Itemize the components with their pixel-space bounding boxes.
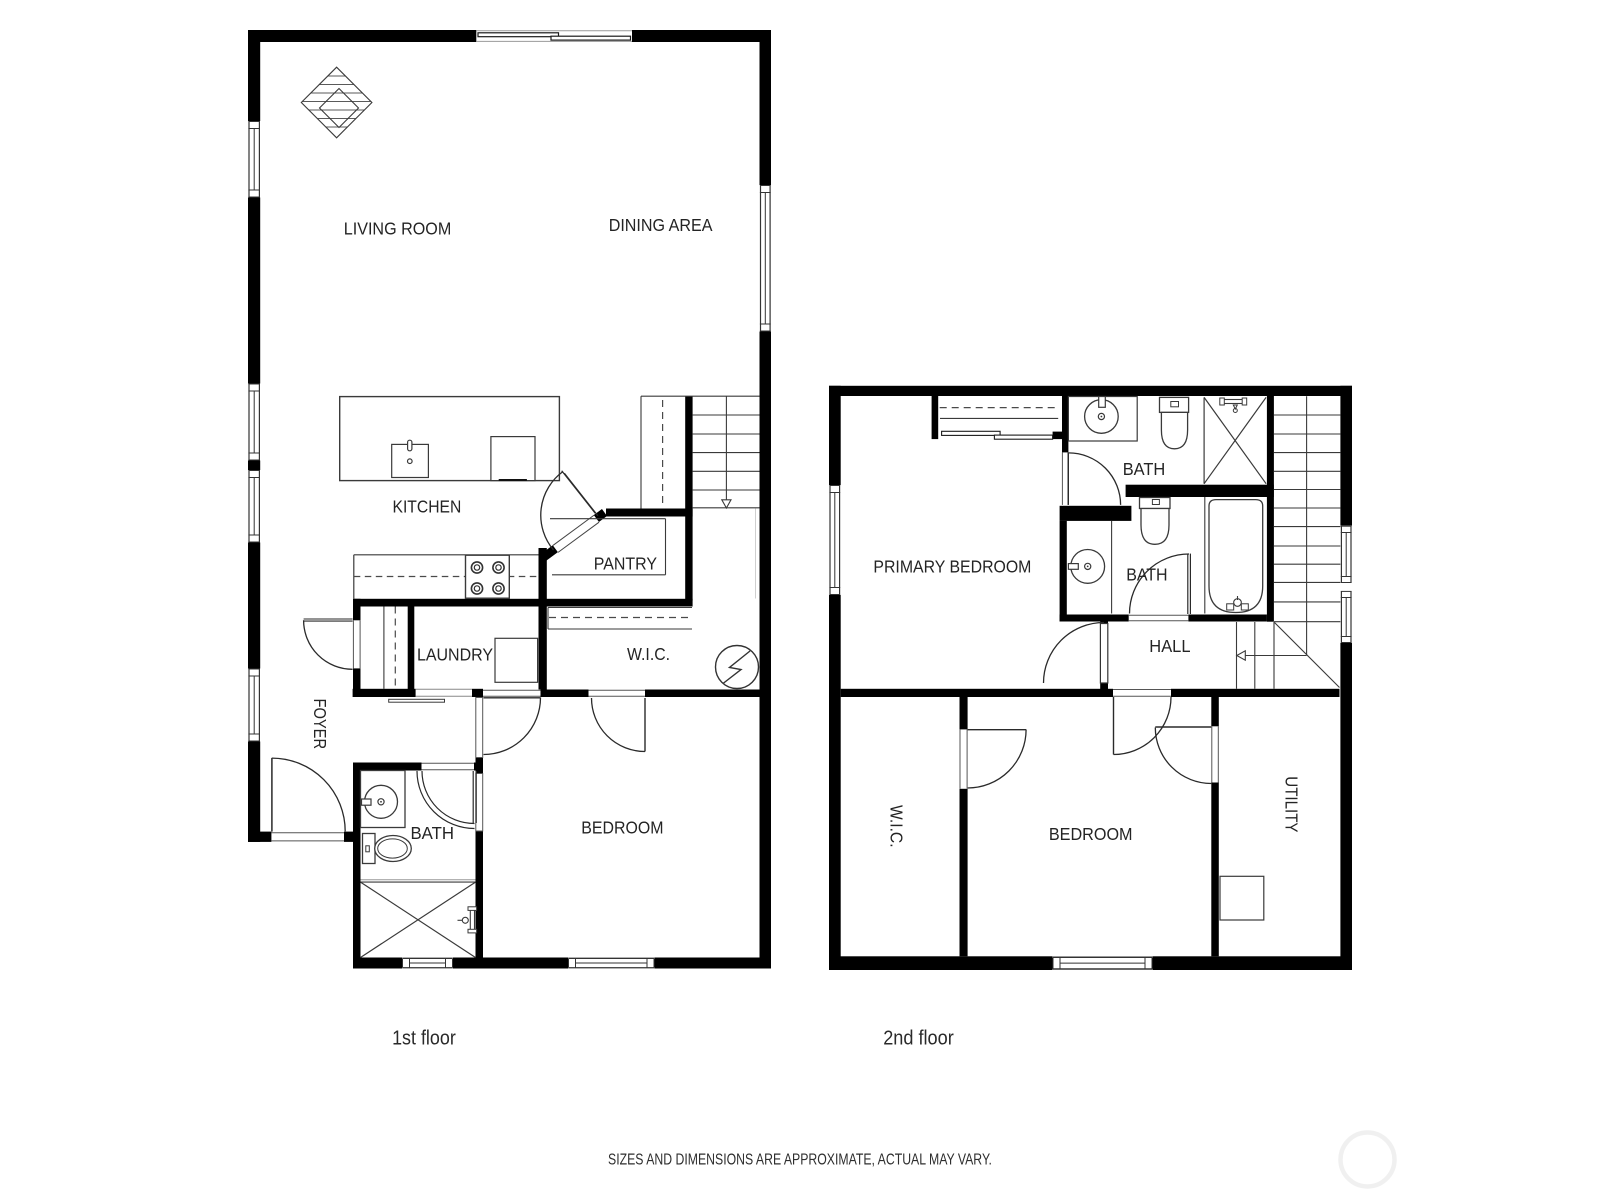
svg-text:LIVING ROOM: LIVING ROOM (344, 219, 452, 239)
svg-text:SIZES AND DIMENSIONS ARE APPRO: SIZES AND DIMENSIONS ARE APPROXIMATE, AC… (608, 1152, 992, 1169)
svg-text:W.I.C.: W.I.C. (886, 805, 906, 848)
svg-text:PANTRY: PANTRY (594, 554, 658, 574)
svg-text:2nd floor: 2nd floor (883, 1028, 954, 1050)
svg-text:BEDROOM: BEDROOM (1049, 824, 1133, 844)
svg-text:1st floor: 1st floor (392, 1028, 456, 1050)
svg-text:BATH: BATH (1123, 459, 1166, 479)
svg-text:BEDROOM: BEDROOM (581, 817, 663, 837)
svg-text:LAUNDRY: LAUNDRY (417, 645, 493, 665)
svg-text:UTILITY: UTILITY (1281, 776, 1301, 832)
svg-text:BATH: BATH (1126, 564, 1167, 584)
svg-text:FOYER: FOYER (310, 699, 330, 750)
svg-text:KITCHEN: KITCHEN (393, 497, 462, 517)
svg-text:BATH: BATH (410, 823, 454, 843)
svg-text:DINING AREA: DINING AREA (609, 215, 713, 235)
svg-text:PRIMARY BEDROOM: PRIMARY BEDROOM (873, 557, 1031, 577)
svg-text:W.I.C.: W.I.C. (627, 644, 670, 664)
svg-text:HALL: HALL (1149, 636, 1190, 656)
